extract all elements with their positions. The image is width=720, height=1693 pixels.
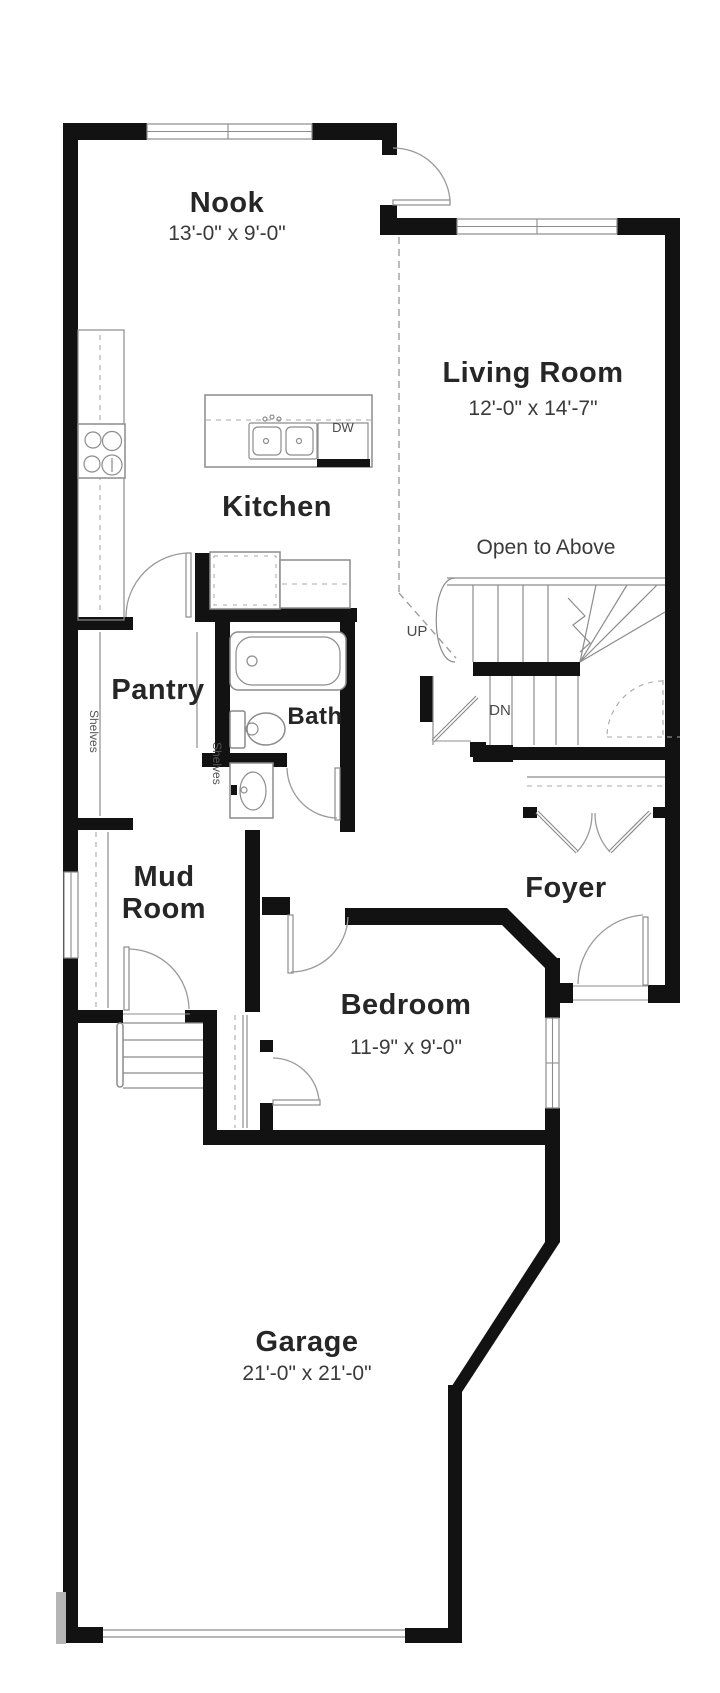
- nook-window: [147, 124, 312, 139]
- wall-segment: [523, 807, 537, 818]
- garage-dimensions: 21'-0" x 21'-0": [242, 1362, 371, 1385]
- pantry-label: Pantry: [111, 674, 204, 706]
- refrigerator: [210, 552, 280, 609]
- dn-label: DN: [489, 702, 511, 719]
- pantry-shelving: [100, 632, 197, 816]
- up-label: UP: [407, 623, 428, 640]
- garage-door: [103, 1630, 405, 1637]
- front-door: [573, 915, 648, 1000]
- garage-label: Garage: [256, 1326, 359, 1358]
- basement-stair-door: [433, 697, 477, 741]
- garage-corner-trim: [56, 1592, 66, 1644]
- stove: [78, 424, 125, 478]
- mud-room-label-line1: Mud: [133, 861, 194, 893]
- open-to-above-boundary: [399, 237, 456, 658]
- kitchen-fixtures: [78, 330, 372, 620]
- bedroom-window: [546, 1018, 559, 1108]
- wall-segment: [653, 807, 667, 818]
- bath-label: Bath: [287, 703, 342, 730]
- wall-segment: [448, 1385, 462, 1643]
- wall-segment: [665, 218, 680, 1003]
- toilet: [230, 711, 285, 748]
- wall-segment: [470, 742, 486, 757]
- wall-segment: [195, 608, 357, 622]
- labels: Nook 13'-0" x 9'-0" Living Room 12'-0" x…: [87, 187, 624, 1385]
- wall-segment: [473, 662, 580, 676]
- bedroom-label: Bedroom: [341, 989, 472, 1021]
- wall-segment: [185, 1010, 217, 1023]
- shelves-label-left: Shelves: [87, 710, 101, 753]
- wall-segment-angled: [448, 1242, 560, 1392]
- foyer-closet-double-doors: [537, 812, 650, 852]
- dishwasher-label: DW: [332, 420, 354, 435]
- wall-segment: [545, 958, 560, 1018]
- wall-segment: [63, 818, 133, 830]
- living-room-window: [457, 219, 617, 234]
- bedroom-dimensions: 11-9" x 9'-0": [350, 1036, 462, 1059]
- wall-segment: [648, 985, 680, 1003]
- floor-plan-drawing: Nook 13'-0" x 9'-0" Living Room 12'-0" x…: [0, 0, 720, 1693]
- doors: [123, 148, 680, 1105]
- pantry-door: [126, 553, 191, 617]
- bedroom-closet-shelving: [235, 1015, 247, 1128]
- mud-room-label-line2: Room: [122, 893, 206, 925]
- bedroom-closet-door: [273, 1058, 320, 1105]
- wall-segment: [395, 218, 457, 235]
- kitchen-counter-right: [280, 560, 350, 608]
- nook-exterior-door: [393, 148, 450, 205]
- wall-segment: [545, 1130, 560, 1242]
- floor-plan-page: Nook 13'-0" x 9'-0" Living Room 12'-0" x…: [0, 0, 720, 1693]
- wall-segment: [215, 622, 230, 755]
- wall-segment: [260, 1040, 273, 1052]
- wall-segment: [513, 747, 667, 760]
- garage-steps: [117, 1023, 203, 1088]
- wall-segment: [203, 1010, 217, 1132]
- bath-door: [287, 768, 340, 820]
- bedroom-door: [288, 915, 348, 973]
- wall-segment: [63, 617, 133, 630]
- wall-segment: [260, 1103, 273, 1130]
- shelves-label-right: Shelves: [210, 742, 224, 785]
- living-room-label: Living Room: [442, 357, 623, 389]
- bath-vanity-sink: [230, 763, 273, 818]
- wall-segment: [345, 908, 507, 925]
- mud-room-window: [64, 872, 78, 958]
- open-to-above-label: Open to Above: [477, 536, 616, 559]
- wall-segment: [245, 830, 260, 1012]
- wall-segment: [203, 1130, 560, 1145]
- staircase: [433, 578, 665, 745]
- wall-segment: [420, 676, 433, 722]
- mud-room-bench: [96, 832, 108, 1008]
- nook-label: Nook: [190, 187, 265, 219]
- living-room-dimensions: 12'-0" x 14'-7": [468, 397, 597, 420]
- kitchen-label: Kitchen: [222, 491, 332, 523]
- wall-segment: [63, 1627, 103, 1643]
- foyer-label: Foyer: [525, 872, 606, 904]
- nook-dimensions: 13'-0" x 9'-0": [168, 222, 285, 245]
- wall-segment: [405, 1628, 462, 1643]
- garage-entry-door: [123, 947, 190, 1014]
- foyer-closet-shelf: [527, 777, 665, 786]
- wall-segment: [63, 123, 147, 140]
- wall-segment: [382, 123, 397, 155]
- wall-segment: [380, 205, 397, 235]
- wall-segment: [63, 1010, 123, 1023]
- wall-segment: [262, 897, 290, 915]
- bathtub: [230, 632, 346, 690]
